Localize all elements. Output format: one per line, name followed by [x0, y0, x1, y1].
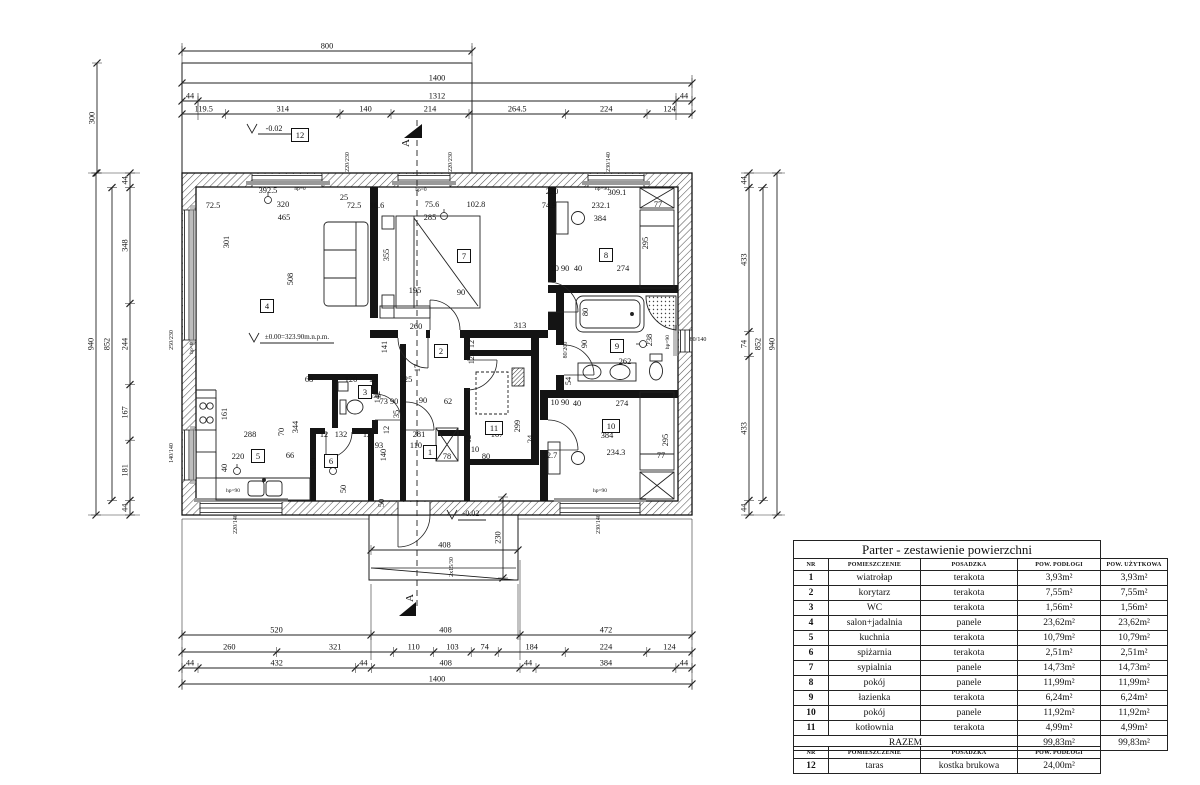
dim-label: 295 — [661, 434, 670, 446]
svg-text:852: 852 — [103, 338, 112, 350]
dim-label: 142 — [373, 391, 382, 403]
svg-text:408: 408 — [439, 626, 451, 635]
kitchen-fixtures — [196, 390, 310, 500]
col-header: POW. PODŁOGI — [1018, 747, 1101, 759]
svg-text:181: 181 — [121, 464, 130, 476]
dim-label: 190 — [309, 458, 318, 470]
dim-label: 110 — [410, 441, 422, 450]
svg-text:433: 433 — [740, 253, 749, 265]
dim-label: 68 — [305, 375, 313, 384]
dim-label: 72.5 — [206, 201, 221, 210]
dim-label: 120 — [345, 375, 357, 384]
dim-label: 78 — [443, 452, 451, 461]
dim-label: 10 — [471, 445, 479, 454]
dim-label: 295 — [641, 237, 650, 249]
dim-label: 54 — [564, 376, 573, 385]
col-header: POW. PODŁOGI — [1018, 559, 1101, 571]
svg-text:314: 314 — [277, 105, 290, 114]
col-header: POSADZKA — [921, 747, 1018, 759]
table-title-row: Parter - zestawienie powierzchni — [794, 541, 1168, 559]
floor-plan-sheet: 800140044131244119.5314140214264.5224124… — [0, 0, 1200, 785]
svg-text:103: 103 — [446, 643, 458, 652]
shower — [646, 296, 676, 330]
dim-label: A — [400, 139, 412, 147]
dim-label: 140/140 — [169, 443, 175, 463]
table-row: 12taraskostka brukowa24,00m² — [794, 759, 1101, 774]
dim-label: 355 — [382, 249, 391, 261]
dim-chain: 1400 — [179, 675, 696, 690]
dim-label: 12 — [369, 375, 377, 384]
dim-label: 17 — [413, 364, 422, 372]
svg-text:44: 44 — [740, 175, 749, 184]
room-number: 12 — [296, 130, 305, 140]
dim-label: 141 — [380, 341, 389, 353]
svg-text:230: 230 — [494, 531, 503, 543]
dim-chain: 800 — [179, 42, 476, 57]
table-row: 1wiatrołapterakota3,93m²3,93m² — [794, 571, 1168, 586]
boiler — [476, 372, 508, 414]
dim-label: 16.6 — [370, 201, 385, 210]
dim-chain: 4434824416718144 — [121, 170, 136, 519]
dim-label: 220/230 — [448, 152, 454, 172]
col-header: POMIESZCZENIE — [829, 559, 921, 571]
dim-label: 465 — [278, 213, 290, 222]
dim-label: 508 — [286, 273, 295, 285]
table-header-row: NRPOMIESZCZENIEPOSADZKAPOW. PODŁOGI — [794, 747, 1101, 759]
dim-label: 80 — [482, 452, 490, 461]
dim-chain: 940 — [87, 170, 102, 519]
svg-text:1400: 1400 — [429, 74, 446, 83]
dim-chain: 940 — [768, 170, 783, 519]
section-marker-bottom — [399, 602, 416, 616]
room-number: 8 — [604, 250, 608, 260]
dim-label: 250/230 — [169, 330, 175, 350]
svg-text:140: 140 — [359, 105, 371, 114]
dim-chain: 852 — [754, 184, 769, 504]
table-row: 5kuchniaterakota10,79m²10,79m² — [794, 631, 1168, 646]
dim-label: 102.8 — [467, 200, 486, 209]
dim-chain: 1400 — [179, 74, 696, 89]
room-number: 7 — [462, 251, 466, 261]
dim-label: 344 — [291, 420, 300, 433]
dim-label: 35 — [392, 410, 401, 418]
dim-label: 161 — [220, 408, 229, 420]
dim-label: 66 — [286, 451, 294, 460]
dim-label: 50 — [377, 499, 386, 507]
bedroom7-door — [430, 300, 460, 330]
dim-label: 285 — [424, 213, 436, 222]
svg-text:44: 44 — [359, 659, 368, 668]
svg-text:74: 74 — [481, 643, 490, 652]
table-row: 9łazienkaterakota6,24m²6,24m² — [794, 691, 1168, 706]
dim-label: 72.5 — [347, 201, 362, 210]
dim-label: 12 — [464, 435, 473, 443]
dim-label: ±0.00=323.90m.n.p.m. — [265, 333, 329, 341]
dim-label: 320 — [277, 200, 289, 209]
dim-label: 392.5 — [259, 186, 278, 195]
dim-label: 281 — [413, 430, 425, 439]
dim-label: 24 — [526, 434, 535, 443]
svg-text:852: 852 — [754, 338, 763, 350]
vestibule-door — [406, 402, 434, 430]
svg-text:124: 124 — [663, 643, 676, 652]
table-title: Parter - zestawienie powierzchni — [794, 541, 1101, 559]
svg-text:940: 940 — [87, 338, 96, 350]
section-marker-top — [404, 124, 422, 138]
dim-label: 50 — [339, 485, 348, 493]
dim-label: hp=0 — [189, 342, 195, 354]
front-door — [398, 515, 430, 547]
table-row: 8pokójpanele11,99m²11,99m² — [794, 676, 1168, 691]
dim-label: hp=90 — [226, 488, 240, 494]
dim-chain: 300 — [88, 60, 103, 177]
table-header-row: NRPOMIESZCZENIEPOSADZKAPOW. PODŁOGIPOW. … — [794, 559, 1168, 571]
svg-text:384: 384 — [600, 659, 613, 668]
dim-label: -0.02 — [266, 124, 283, 133]
svg-text:44: 44 — [121, 503, 130, 512]
dim-label: 301 — [222, 236, 231, 248]
svg-text:44: 44 — [524, 659, 533, 668]
dim-label: 195 — [409, 286, 421, 295]
svg-text:224: 224 — [600, 643, 613, 652]
dim-label: 230/140 — [606, 152, 612, 172]
dim-chain: 44432444084438444 — [179, 659, 696, 674]
dim-label: 232.1 — [592, 201, 611, 210]
dim-label: 40 — [574, 264, 582, 273]
svg-text:44: 44 — [680, 92, 689, 101]
sofa — [324, 222, 368, 306]
dim-label: 220/140 — [233, 514, 239, 534]
table-row: 3WCterakota1,56m²1,56m² — [794, 601, 1168, 616]
dim-label: A — [404, 594, 416, 602]
dim-label: 12 — [382, 426, 391, 434]
room-number: 6 — [329, 456, 333, 466]
col-header: NR — [794, 559, 829, 571]
svg-text:124: 124 — [663, 105, 676, 114]
svg-text:44: 44 — [186, 659, 195, 668]
dim-label: 74.9 — [542, 201, 557, 210]
bath-toilet — [650, 354, 663, 380]
terrace-table: NRPOMIESZCZENIEPOSADZKAPOW. PODŁOGI12tar… — [793, 746, 1101, 774]
col-header: POSADZKA — [921, 559, 1018, 571]
dim-label: 90 — [419, 396, 427, 405]
svg-text:74: 74 — [740, 339, 749, 348]
svg-text:244: 244 — [121, 337, 130, 350]
dim-label: 220/230 — [345, 152, 351, 172]
svg-text:432: 432 — [270, 659, 282, 668]
dim-label: 80 — [581, 308, 590, 316]
svg-text:408: 408 — [439, 659, 451, 668]
room-number: 10 — [607, 421, 616, 431]
dim-label: 225 — [400, 375, 412, 384]
room-number: 3 — [363, 387, 367, 397]
dim-label: 262 — [619, 357, 631, 366]
dim-chain: 852 — [103, 184, 118, 504]
room-number: 11 — [490, 423, 498, 433]
dim-chain: 44131244 — [179, 92, 696, 107]
dim-label: hp=90 — [665, 335, 671, 349]
dim-label: 230/140 — [596, 514, 602, 534]
svg-text:472: 472 — [600, 626, 612, 635]
dim-label: 2x15/30 — [449, 557, 455, 577]
dim-label: 309.1 — [608, 188, 627, 197]
table-row: 7sypialniapanele14,73m²14,73m² — [794, 661, 1168, 676]
dim-label: 220 — [232, 452, 244, 461]
svg-text:348: 348 — [121, 239, 130, 251]
dim-label: 260 — [410, 322, 422, 331]
dim-label: hp=0 — [415, 187, 427, 193]
dim-label: 77 — [654, 200, 662, 209]
dim-label: -0.02 — [463, 509, 480, 518]
svg-text:408: 408 — [438, 541, 450, 550]
svg-text:520: 520 — [270, 626, 282, 635]
dim-label: 80/200 — [563, 342, 569, 359]
dim-label: 12 — [467, 340, 476, 348]
chimney — [512, 368, 524, 386]
dim-label: 72.7 — [543, 451, 558, 460]
bed-room10 — [548, 392, 674, 499]
dim-label: 12 — [363, 430, 371, 439]
dim-label: hp=90 — [595, 186, 609, 192]
area-summary-table: Parter - zestawienie powierzchniNRPOMIES… — [793, 540, 1168, 751]
svg-text:110: 110 — [408, 643, 420, 652]
dim-label: 124 — [467, 351, 476, 364]
svg-text:44: 44 — [121, 175, 130, 184]
dim-label: hp=0 — [294, 186, 306, 192]
dim-label: 93 — [375, 441, 383, 450]
room10-door — [548, 420, 578, 450]
svg-text:44: 44 — [740, 503, 749, 512]
dim-label: 70 — [277, 428, 286, 436]
svg-text:167: 167 — [121, 406, 130, 418]
svg-text:184: 184 — [525, 643, 538, 652]
dim-chain: 119.5314140214264.5224124 — [179, 105, 696, 120]
dim-label: 75.6 — [425, 200, 440, 209]
dim-label: 10 90 — [551, 264, 570, 273]
room-number: 5 — [256, 451, 260, 461]
svg-text:940: 940 — [768, 338, 777, 350]
dim-label: 90 — [457, 288, 465, 297]
svg-text:1400: 1400 — [429, 675, 446, 684]
svg-text:300: 300 — [88, 112, 97, 124]
dim-label: 12 — [320, 430, 328, 439]
svg-text:44: 44 — [186, 92, 195, 101]
dim-label: 234.3 — [607, 448, 626, 457]
col-header: NR — [794, 747, 829, 759]
svg-text:264.5: 264.5 — [508, 105, 527, 114]
room-number: 2 — [439, 346, 443, 356]
dimension-labels: 392.532072.54653015082572.516.675.628510… — [169, 124, 706, 602]
dim-label: 73 90 — [380, 397, 399, 406]
dim-label: 140 — [379, 449, 388, 461]
dim-label: 274 — [617, 264, 630, 273]
dim-label: 288 — [244, 430, 256, 439]
table-row: 4salon+jadalniapanele23,62m²23,62m² — [794, 616, 1168, 631]
svg-text:224: 224 — [600, 105, 613, 114]
svg-text:214: 214 — [424, 105, 437, 114]
dim-label: 40 — [220, 464, 229, 472]
table-row: 2korytarzterakota7,55m²7,55m² — [794, 586, 1168, 601]
front-door-opening — [398, 502, 430, 515]
dim-label: 80/140 — [690, 337, 707, 343]
room-number: 1 — [428, 447, 432, 457]
dim-label: 220 — [546, 187, 558, 196]
dim-label: 90 — [580, 340, 589, 348]
dim-label: 313 — [514, 321, 526, 330]
svg-text:433: 433 — [740, 422, 749, 434]
col-header: POMIESZCZENIE — [829, 747, 921, 759]
dim-label: 299 — [513, 420, 522, 432]
col-header: POW. UŻYTKOWA — [1101, 559, 1168, 571]
dim-chain: 520408472 — [179, 626, 696, 641]
dim-label: 10 90 — [551, 398, 570, 407]
dim-label: 384 — [594, 214, 607, 223]
room-number: 9 — [615, 341, 619, 351]
svg-text:321: 321 — [329, 643, 341, 652]
svg-text:1312: 1312 — [429, 92, 446, 101]
dim-label: 77 — [657, 451, 665, 460]
table-row: 11kotłowniaterakota4,99m²4,99m² — [794, 721, 1168, 736]
dim-label: 238 — [645, 334, 654, 346]
dim-chain: 26032111010374184224124 — [179, 643, 696, 658]
entry-porch — [182, 515, 692, 580]
dim-label: 40 — [573, 399, 581, 408]
table-row: 6spiżarniaterakota2,51m²2,51m² — [794, 646, 1168, 661]
dim-label: hp=90 — [593, 488, 607, 494]
dim-label: 274 — [616, 399, 629, 408]
svg-text:119.5: 119.5 — [195, 105, 213, 114]
svg-text:800: 800 — [321, 42, 333, 51]
dim-chain: 444337443344 — [740, 170, 755, 519]
table-row: 10pokójpanele11,92m²11,92m² — [794, 706, 1168, 721]
svg-text:260: 260 — [223, 643, 235, 652]
dim-label: 62 — [444, 397, 452, 406]
dim-label: 132 — [335, 430, 347, 439]
svg-text:44: 44 — [680, 659, 689, 668]
